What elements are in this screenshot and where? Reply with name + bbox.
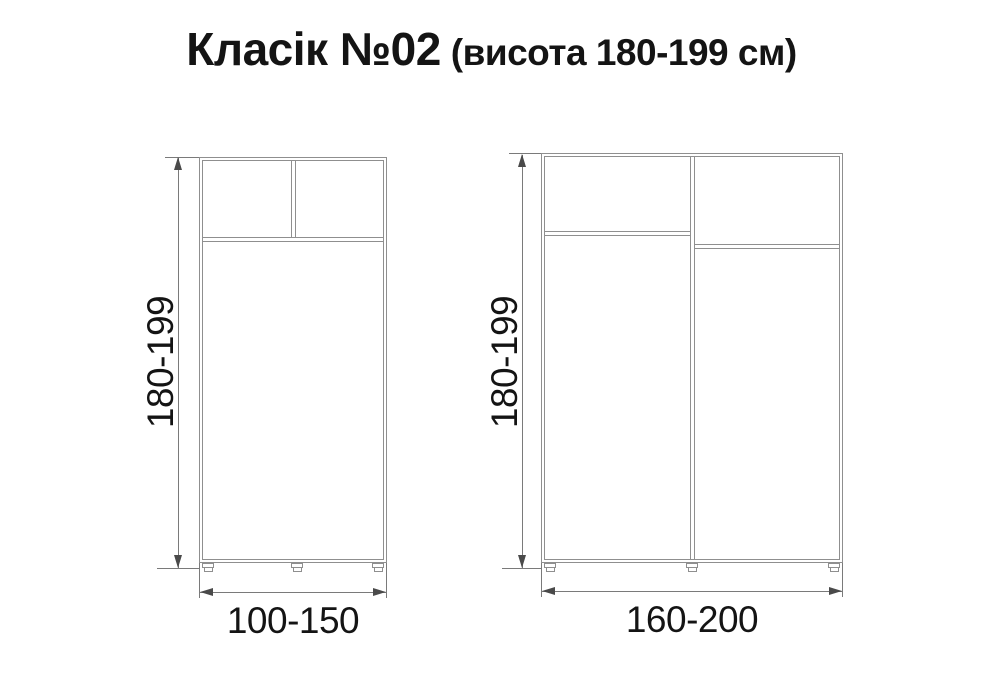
wardrobe-foot	[202, 563, 214, 572]
wardrobe-small-top-divider	[291, 160, 296, 238]
wardrobe-foot	[544, 563, 556, 572]
dim-arrow-left-icon	[200, 588, 213, 596]
width-dimension-label: 100-150	[183, 600, 403, 642]
title-height-range: (висота 180-199 см)	[451, 32, 797, 73]
height-extension-line-top	[165, 157, 199, 158]
height-extension-line-bottom	[157, 568, 199, 569]
wardrobe-large-center-divider	[690, 156, 695, 560]
height-dimension-label: 180-199	[483, 252, 527, 472]
dim-arrow-down-icon	[174, 555, 182, 568]
dim-arrow-left-icon	[542, 587, 555, 595]
height-extension-line-bottom	[502, 568, 541, 569]
wardrobe-dimension-diagram: Класік №02(висота 180-199 см) 180-199	[0, 0, 983, 700]
wardrobe-small-shelf	[202, 237, 384, 242]
wardrobe-foot	[828, 563, 840, 572]
dim-arrow-down-icon	[518, 555, 526, 568]
width-dimension-label: 160-200	[582, 599, 802, 641]
dim-arrow-up-icon	[174, 157, 182, 170]
wardrobe-large-right-shelf	[695, 244, 840, 249]
dim-arrow-right-icon	[829, 587, 842, 595]
height-dimension-label: 180-199	[139, 252, 183, 472]
wardrobe-foot	[372, 563, 384, 572]
width-dimension-line	[541, 591, 843, 592]
wardrobe-foot	[686, 563, 698, 572]
wardrobe-large-left-shelf	[544, 231, 690, 236]
page-title: Класік №02(висота 180-199 см)	[0, 22, 983, 76]
dim-arrow-up-icon	[518, 154, 526, 167]
wardrobe-large-body	[541, 153, 843, 563]
title-product-name: Класік №02	[186, 23, 441, 75]
dim-arrow-right-icon	[373, 588, 386, 596]
wardrobe-small-body	[199, 157, 387, 563]
width-dimension-line	[199, 592, 387, 593]
wardrobe-foot	[291, 563, 303, 572]
